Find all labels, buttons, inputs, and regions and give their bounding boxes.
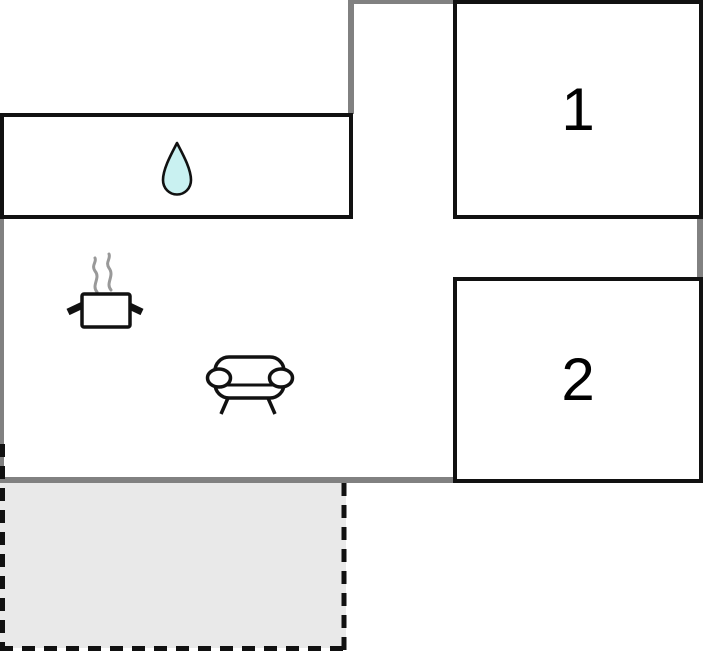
- room-2: 2: [453, 277, 703, 483]
- terrace-area: [0, 483, 346, 648]
- room-1: 1: [453, 0, 703, 219]
- cooking-pot-icon: [60, 250, 150, 332]
- wall-bottom: [0, 477, 459, 483]
- room-2-label: 2: [561, 350, 594, 410]
- room-1-label: 1: [561, 80, 594, 140]
- steam-icon: [108, 254, 111, 290]
- bathroom-room: [0, 113, 353, 219]
- wall-right-middle: [697, 217, 703, 279]
- steam-icon: [94, 258, 97, 292]
- floor-plan: 1 2: [0, 0, 703, 652]
- water-drop-icon: [160, 141, 194, 197]
- wall-hallway-top: [348, 0, 456, 4]
- wall-left: [0, 219, 4, 480]
- wall-hallway-vertical: [348, 0, 354, 114]
- sofa-icon: [200, 348, 300, 418]
